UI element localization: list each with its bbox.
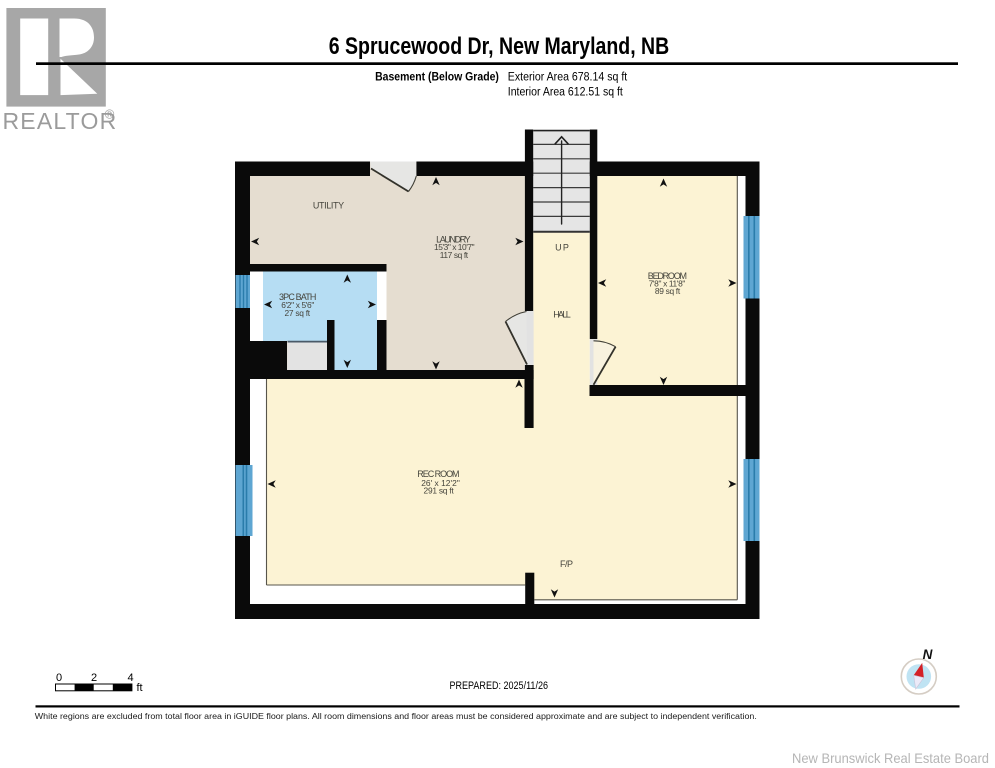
svg-text:Basement (Below Grade): Basement (Below Grade): [375, 69, 499, 83]
svg-text:New Brunswick Real Estate Boar: New Brunswick Real Estate Board: [792, 750, 989, 766]
svg-text:Exterior Area 678.14 sq ft: Exterior Area 678.14 sq ft: [508, 69, 628, 83]
svg-text:89 sq ft: 89 sq ft: [655, 286, 681, 296]
svg-text:®: ®: [105, 107, 115, 122]
svg-text:UP: UP: [555, 243, 569, 253]
svg-text:UTILITY: UTILITY: [313, 201, 344, 211]
svg-text:27 sq ft: 27 sq ft: [285, 308, 311, 318]
svg-text:ft: ft: [137, 682, 143, 694]
svg-text:2: 2: [91, 672, 97, 684]
svg-text:Interior Area 612.51 sq ft: Interior Area 612.51 sq ft: [508, 85, 623, 99]
svg-text:117 sq ft: 117 sq ft: [440, 250, 469, 260]
svg-text:White regions are excluded fro: White regions are excluded from total fl…: [35, 711, 757, 721]
svg-text:REALTOR: REALTOR: [3, 108, 118, 134]
svg-text:4: 4: [127, 672, 133, 684]
svg-text:6 Sprucewood Dr, New Maryland,: 6 Sprucewood Dr, New Maryland, NB: [329, 33, 670, 60]
svg-text:N: N: [923, 647, 933, 662]
svg-text:0: 0: [56, 672, 62, 684]
svg-text:291 sq ft: 291 sq ft: [424, 486, 455, 496]
svg-text:F/P: F/P: [560, 559, 573, 569]
svg-text:PREPARED: 2025/11/26: PREPARED: 2025/11/26: [450, 680, 549, 692]
svg-text:HALL: HALL: [553, 310, 571, 320]
